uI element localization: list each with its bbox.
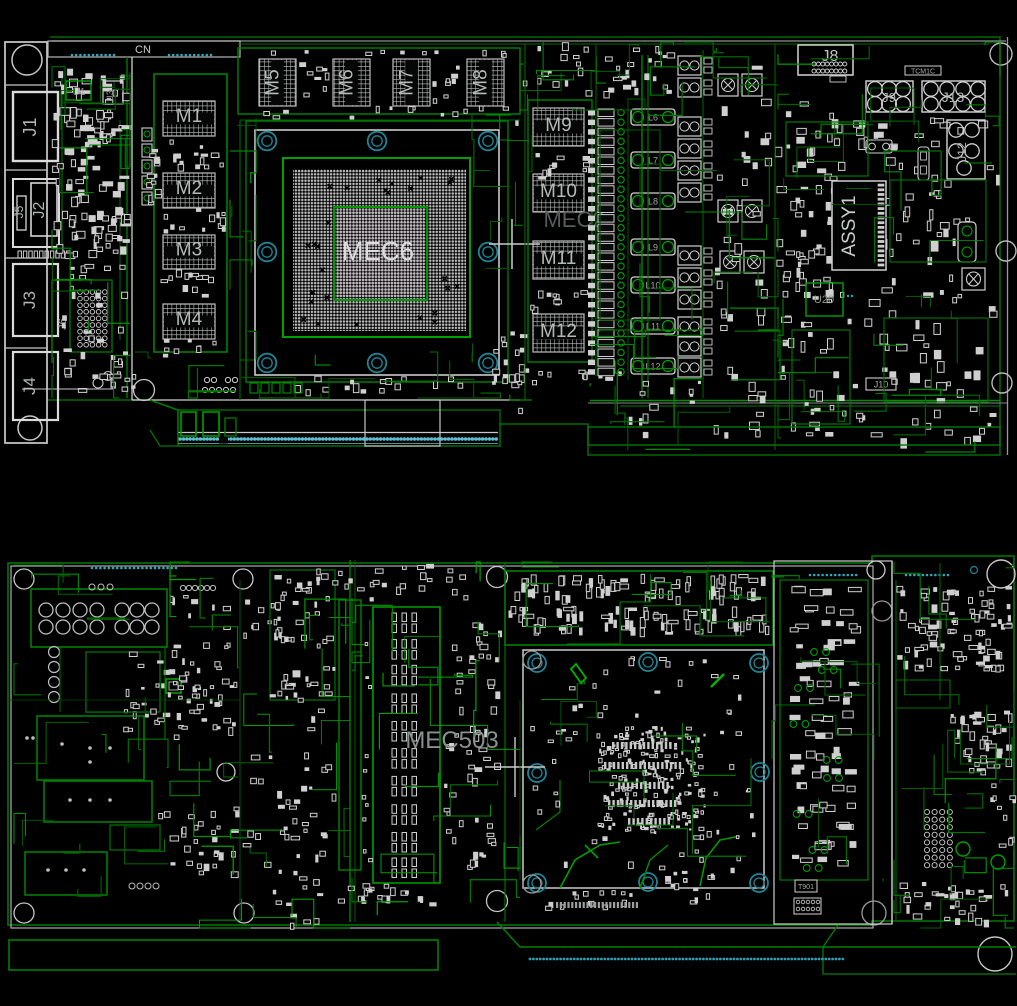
svg-text:J13: J13 [942,89,965,105]
svg-text:J5: J5 [12,205,26,218]
svg-text:TCM1C: TCM1C [911,69,935,76]
svg-text:U3: U3 [105,90,115,102]
svg-text:M11: M11 [541,248,577,269]
svg-text:M7: M7 [397,69,418,95]
svg-text:U20: U20 [814,294,834,306]
svg-text:J10: J10 [874,380,889,390]
svg-text:M6: M6 [337,69,358,95]
svg-text:T901: T901 [798,884,814,891]
svg-text:L9: L9 [648,243,658,253]
svg-text:M4: M4 [176,309,203,330]
svg-text:M10: M10 [540,181,577,202]
svg-text:L6: L6 [648,113,658,123]
svg-text:M1: M1 [176,106,202,127]
svg-text:J3: J3 [20,291,39,309]
svg-text:M12: M12 [540,321,577,342]
svg-text:MEC2: MEC2 [543,207,604,232]
svg-text:J9: J9 [882,90,896,105]
svg-text:M8: M8 [471,69,492,95]
svg-text:J1: J1 [20,117,40,136]
svg-text:MEC503: MEC503 [405,727,498,754]
svg-text:MEC6: MEC6 [342,236,414,266]
svg-text:J2: J2 [31,201,48,218]
svg-text:M3: M3 [176,239,202,260]
svg-text:M9: M9 [545,115,571,136]
svg-text:J12: J12 [955,142,969,162]
svg-text:M2: M2 [176,178,202,199]
svg-text:J4: J4 [20,377,39,395]
svg-text:M5: M5 [263,69,284,95]
svg-text:L8: L8 [648,197,658,207]
svg-text:CN: CN [135,44,151,56]
